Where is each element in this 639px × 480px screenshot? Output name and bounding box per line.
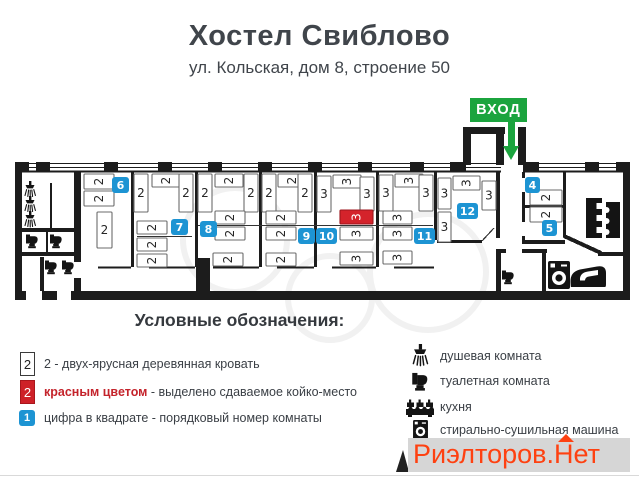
room-number-label: 9 bbox=[303, 230, 311, 243]
bed-count-label: 2 bbox=[101, 223, 109, 237]
bed-count-label: 2 bbox=[223, 230, 237, 238]
bed-count-label: 3 bbox=[391, 254, 405, 262]
legend-item-bed: 2 2 - двух-ярусная деревянная кровать bbox=[20, 352, 260, 376]
shower-icon bbox=[25, 196, 35, 212]
legend-item-toilet: туалетная комната bbox=[405, 371, 550, 391]
bed-count-label: 3 bbox=[460, 179, 474, 187]
bed-count-label: 3 bbox=[320, 187, 328, 201]
watermark-roof-icon bbox=[558, 434, 574, 442]
shower-icon bbox=[25, 181, 35, 197]
legend-item-room-number: 1 цифра в квадрате - порядковый номер ко… bbox=[19, 410, 322, 426]
bed-count-label: 2 bbox=[159, 177, 173, 185]
bed-count-label: 2 bbox=[201, 186, 209, 200]
shower-icon bbox=[25, 211, 35, 227]
bed-count-label: 3 bbox=[441, 220, 449, 234]
legend-item-washer: стирально-сушильная машина bbox=[405, 420, 619, 439]
bed-count-label: 2 bbox=[145, 257, 159, 265]
toilet-icon bbox=[62, 261, 74, 275]
watermark-text: Риэлторов.Нет bbox=[413, 439, 600, 470]
hostel-floorplan-page: Хостел Свиблово ул. Кольская, дом 8, стр… bbox=[0, 0, 639, 480]
page-divider bbox=[0, 475, 639, 476]
floorplan-svg: 2222222222222222222223333333333333333224… bbox=[0, 0, 639, 480]
iron-icon bbox=[570, 266, 606, 287]
legend-item-rented-bed: 2 красным цветом - выделено сдаваемое ко… bbox=[20, 380, 357, 404]
toilet-icon bbox=[50, 235, 62, 249]
bed-count-label: 3 bbox=[422, 186, 430, 200]
plan-dynamic-layer: 2222222222222222222223333333333333333224… bbox=[25, 174, 620, 289]
entrance-sign: ВХОД bbox=[470, 98, 527, 122]
bed-count-label: 2 bbox=[182, 186, 190, 200]
room-number-label: 6 bbox=[117, 179, 125, 192]
bed-count-label: 2 bbox=[274, 230, 288, 238]
bed-count-label: 3 bbox=[485, 189, 493, 203]
bed-count-label: 3 bbox=[382, 186, 390, 200]
legend-item-label: кухня bbox=[440, 400, 472, 414]
shower-icon bbox=[405, 344, 435, 367]
washer-icon bbox=[548, 261, 570, 289]
legend-item-label: 2 - двух-ярусная деревянная кровать bbox=[44, 357, 260, 371]
counter-icon bbox=[586, 198, 602, 238]
bed-count-label: 2 bbox=[265, 186, 273, 200]
room-number-label: 4 bbox=[529, 179, 537, 192]
bed-count-label: 2 bbox=[92, 178, 106, 186]
legend-heading: Условные обозначения: bbox=[0, 310, 479, 331]
bed-count-label: 3 bbox=[391, 214, 405, 222]
bed-count-label: 2 bbox=[539, 194, 553, 202]
bed-symbol: 2 bbox=[20, 352, 35, 376]
legend-item-label: цифра в квадрате - порядковый номер комн… bbox=[44, 411, 322, 425]
bed-count-label: 2 bbox=[247, 186, 255, 200]
room-number-label: 8 bbox=[205, 223, 213, 236]
bed-count-label: 3 bbox=[441, 187, 449, 201]
bed-count-label: 2 bbox=[221, 256, 235, 264]
bed-count-label: 3 bbox=[391, 230, 405, 238]
entrance-arrow bbox=[503, 120, 519, 160]
bed-count-label: 3 bbox=[350, 255, 364, 263]
bed-count-label: 2 bbox=[222, 177, 236, 185]
bed-count-label: 2 bbox=[539, 211, 553, 219]
legend-item-shower: душевая комната bbox=[405, 344, 542, 367]
legend-item-label: красным цветом - выделено сдаваемое койк… bbox=[44, 385, 357, 399]
bed-count-label: 3 bbox=[402, 177, 416, 185]
rented-bed-symbol: 2 bbox=[20, 380, 35, 404]
bed-count-label: 3 bbox=[350, 213, 364, 221]
watermark: Риэлторов.Нет bbox=[408, 438, 630, 472]
room-number-label: 5 bbox=[546, 222, 554, 235]
bed-count-label: 2 bbox=[274, 256, 288, 264]
room-number-symbol: 1 bbox=[19, 410, 35, 426]
toilet-icon bbox=[502, 271, 514, 285]
bed-count-label: 2 bbox=[145, 224, 159, 232]
bed-count-label: 3 bbox=[340, 178, 354, 186]
bed-count-label: 2 bbox=[301, 186, 309, 200]
room-number-label: 10 bbox=[319, 230, 335, 243]
room-number-label: 12 bbox=[460, 205, 475, 218]
bed-count-label: 2 bbox=[92, 195, 106, 203]
toilet-icon bbox=[26, 235, 38, 249]
bed-count-label: 3 bbox=[350, 230, 364, 238]
legend-highlight: красным цветом bbox=[44, 385, 147, 399]
bed-count-label: 2 bbox=[145, 241, 159, 249]
legend-item-label: туалетная комната bbox=[440, 374, 550, 388]
bed-count-label: 2 bbox=[223, 214, 237, 222]
legend-item-label: стирально-сушильная машина bbox=[440, 423, 619, 437]
toilet-icon bbox=[405, 371, 435, 391]
bed-count-label: 2 bbox=[137, 186, 145, 200]
bed-count-label: 2 bbox=[274, 214, 288, 222]
bed-count-label: 2 bbox=[285, 177, 299, 185]
kitchen-icon bbox=[405, 397, 435, 417]
room-number-label: 11 bbox=[417, 230, 432, 243]
bed-count-label: 3 bbox=[363, 187, 371, 201]
toilet-icon bbox=[45, 261, 57, 275]
stove-icon bbox=[604, 202, 621, 238]
legend-item-kitchen: кухня bbox=[405, 397, 472, 417]
legend-item-label: душевая комната bbox=[440, 349, 542, 363]
room-number-label: 7 bbox=[176, 221, 184, 234]
washer-icon bbox=[405, 420, 435, 439]
